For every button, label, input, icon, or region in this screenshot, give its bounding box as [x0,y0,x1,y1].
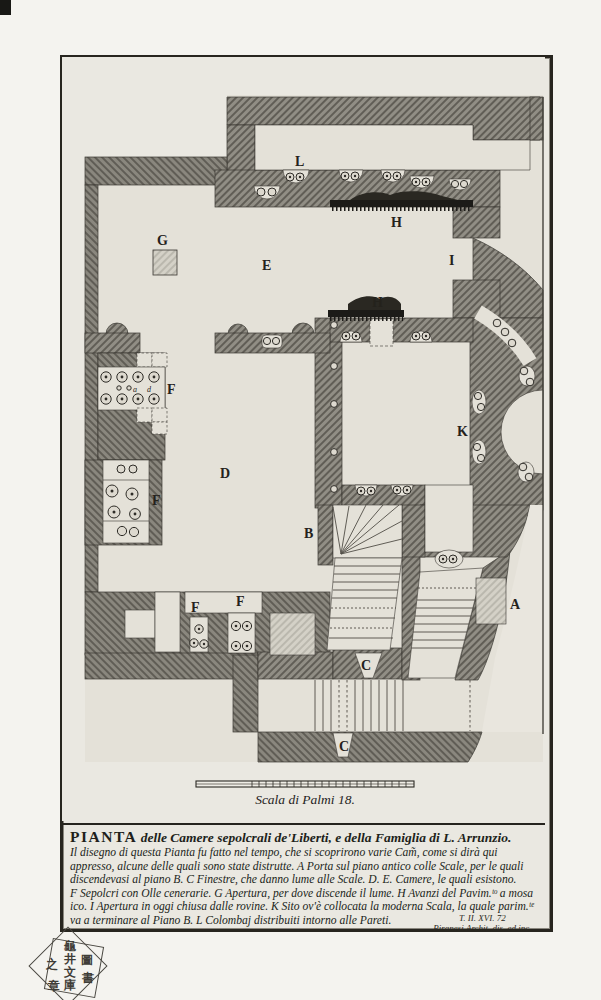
room-label-F3: F [191,600,200,615]
floor-plan-drawing: L H G E I H F D K B F F F A C C a d Scal… [62,57,545,821]
caption-title: PIANTA delle Camere sepolcrali de'Libert… [70,828,535,846]
stamp-char: 之 [46,958,58,970]
caption-line-4: F Sepolcri con Olle cenerarie. G Apertur… [70,887,535,901]
caption-title-rest: delle Camere sepolcrali de'Liberti, e de… [137,830,511,845]
signature-artist: Piranesi Archit. dis. ed inc. [433,923,531,933]
caption-block: PIANTA delle Camere sepolcrali de'Libert… [62,823,545,925]
collector-stamp: 龜 井 文 庫 之 章 圖 書 [26,936,112,1000]
room-label-G: G [157,233,168,248]
caption-title-word: PIANTA [70,828,137,845]
caption-line-3: discendevasi al piano B. C Finestre, che… [70,873,535,887]
room-label-K: K [457,424,468,439]
aperture-g-shaft [153,250,177,275]
room-label-C2: C [339,739,349,754]
stamp-char: 庫 [64,979,76,991]
photo-corner-artifact [0,0,11,15]
room-label-F1: F [167,382,176,397]
signature-reference: T. II. XVI. 72 [433,914,531,923]
room-label-H2: H [372,295,383,310]
caption-line-1: Il disegno di questa Pianta fu fatto nel… [70,846,535,860]
caption-line-2: appresso, alcune delle quali sono state … [70,860,535,874]
artist-signature: T. II. XVI. 72 Piranesi Archit. dis. ed … [433,914,531,933]
stamp-char: 章 [48,980,60,992]
stamp-char: 書 [82,972,94,984]
room-label-E: E [262,258,271,273]
room-label-F4: F [236,594,245,609]
caption-line-6: va a terminare al Piano B. L Colombaj di… [70,914,391,928]
stamp-char: 圖 [81,954,93,966]
caption-line-5: ico. I Apertura in oggi chiusa dalle rov… [70,900,535,914]
room-label-A: A [510,597,521,612]
room-label-L: L [295,154,304,169]
stamp-char: 井 [64,953,76,965]
scale-label: Scala di Palmi 18. [255,792,355,807]
stamp-char: 龜 [64,940,76,952]
room-label-C1: C [361,658,371,673]
room-label-B: B [304,526,313,541]
room-label-I: I [449,253,454,268]
room-label-F2: F [152,493,161,508]
stamp-char: 文 [64,966,76,978]
scanned-plate-page: { "colors": { "paper": "#eae8e1", "floor… [0,0,601,1000]
room-label-H1: H [391,215,402,230]
room-label-D: D [220,466,230,481]
urn-label-a: a [133,385,137,394]
